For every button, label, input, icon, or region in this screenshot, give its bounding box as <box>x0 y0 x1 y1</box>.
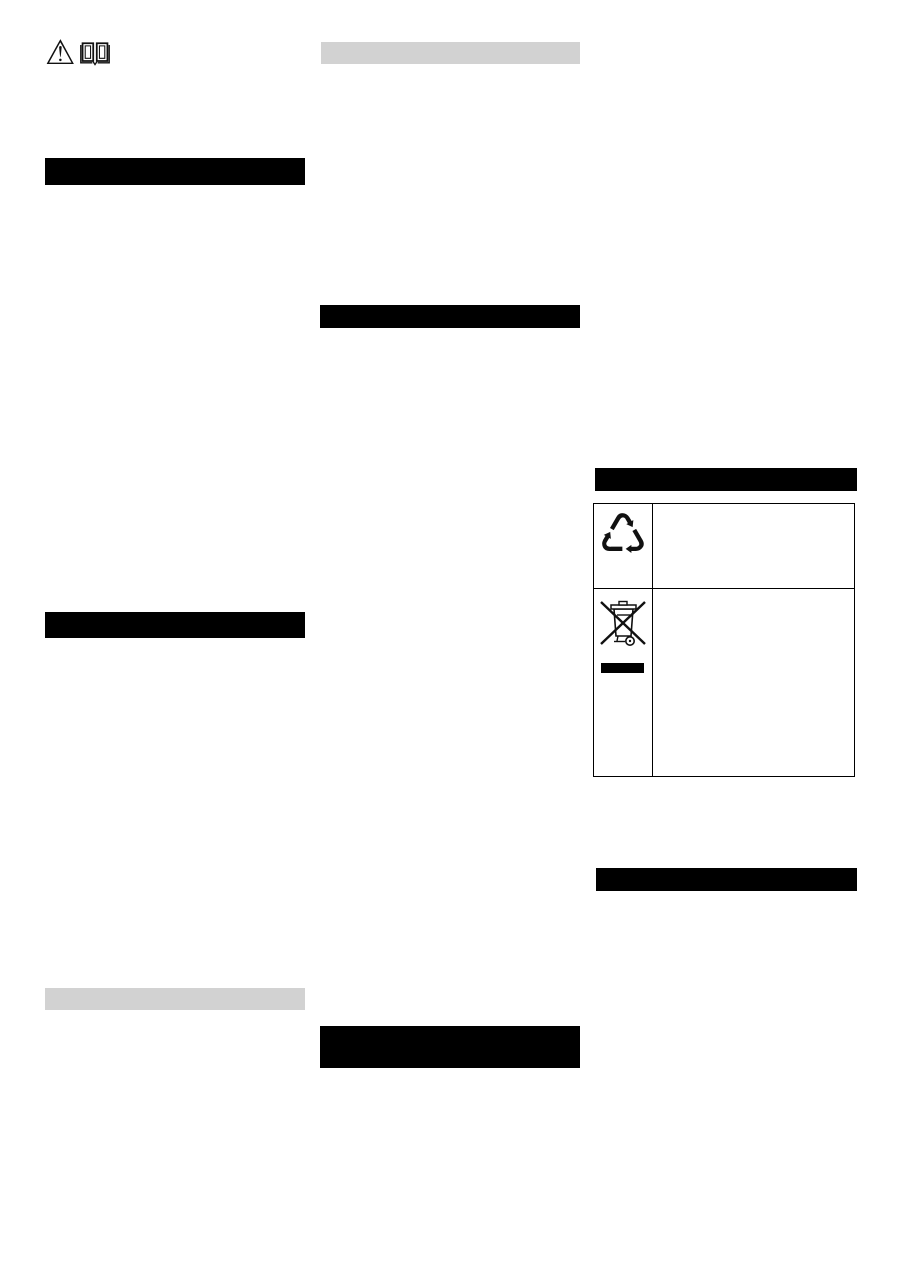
weee-crossed-bin-icon <box>598 635 648 654</box>
weee-black-bar <box>601 663 644 673</box>
redacted-subheading-left <box>45 988 305 1010</box>
table-cell-weee-symbol <box>594 589 653 776</box>
disposal-symbols-table: ♺ <box>593 503 855 777</box>
redacted-heading-right-1 <box>595 468 857 491</box>
table-cell-recycling-symbol: ♺ <box>594 504 653 589</box>
redacted-heading-middle-2 <box>320 1026 580 1068</box>
table-cell-weee-text <box>653 589 854 776</box>
redacted-heading-left-1 <box>45 158 305 185</box>
redacted-heading-middle-1 <box>320 305 580 328</box>
redacted-subheading-middle <box>321 42 580 64</box>
table-cell-recycling-text <box>653 504 854 589</box>
safety-icons-group: ⚠ <box>45 38 111 72</box>
redacted-heading-left-2 <box>45 612 305 638</box>
redacted-heading-right-2 <box>596 868 857 891</box>
warning-triangle-icon: ⚠ <box>45 38 75 68</box>
open-book-icon <box>79 38 111 72</box>
manual-page: ⚠ ♺ <box>0 0 900 1273</box>
recycling-icon: ♺ <box>594 506 652 566</box>
